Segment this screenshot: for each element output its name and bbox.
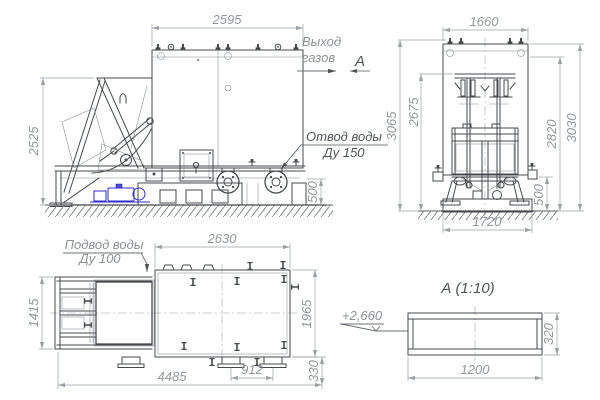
water-supply-label: Подвод воды: [65, 237, 144, 252]
dim-side-inner-left: 2675: [406, 74, 453, 211]
elevation-label: +2,660: [342, 308, 383, 323]
dim-front-drain-height: 500: [305, 179, 333, 205]
gas-outlet-label: газов: [302, 50, 335, 65]
dim-label: 1415: [26, 298, 41, 328]
front-view: 2595 2525 500 Выход газов А Отвод воды Д…: [26, 12, 388, 217]
dim-plan-tank-depth: 1965: [292, 270, 318, 357]
plan-view: 2630 1415 1965 330 912 4485 Подвод: [26, 231, 326, 389]
dim-label: 2525: [26, 126, 41, 157]
technical-drawing-canvas: 2595 2525 500 Выход газов А Отвод воды Д…: [0, 0, 600, 400]
dim-plan-right-offset: 330: [292, 357, 326, 385]
tank-body: [152, 50, 303, 168]
water-drain-label: Отвод воды: [306, 129, 382, 144]
side-roof-bolts: [448, 38, 524, 44]
dim-label: 2630: [207, 231, 238, 246]
dim-label: 1660: [470, 14, 500, 29]
water-drain-label: Ду 150: [321, 145, 365, 160]
dim-plan-skip-depth: 1415: [26, 277, 53, 349]
drawing-page: 2595 2525 500 Выход газов А Отвод воды Д…: [0, 0, 600, 400]
elevation-annotation: +2,660: [340, 308, 408, 331]
water-supply-label: Ду 100: [77, 251, 121, 266]
plan-tank-outline: [155, 261, 290, 357]
duct-cross-section: [408, 313, 542, 355]
dim-side-stub: 500: [531, 177, 553, 211]
dim-section-height: 320: [541, 313, 560, 355]
dim-label: 330: [306, 359, 321, 381]
dim-front-height: 2525: [26, 78, 94, 205]
pump-unit: [90, 168, 162, 202]
dim-label: 1200: [461, 362, 491, 377]
base-frame: [50, 155, 306, 207]
water-supply-annotation: Подвод воды Ду 100: [63, 237, 147, 272]
ground-front: [45, 205, 333, 217]
dim-label: 3030: [564, 113, 579, 143]
gas-outlet-annotation: Выход газов: [297, 34, 341, 71]
tank-roof-bolts: [156, 44, 299, 50]
section-letter: А: [354, 53, 365, 70]
dim-label: 320: [541, 322, 556, 344]
dim-plan-pad-spacing: 912: [231, 362, 273, 381]
dim-label: 3065: [384, 111, 399, 141]
dim-label: 500: [305, 180, 320, 202]
section-cut-marker: А: [350, 53, 370, 71]
dim-label: 2595: [212, 12, 243, 27]
dim-label: 1965: [299, 299, 314, 329]
dim-label: 912: [241, 362, 263, 377]
section-title: А (1:10): [440, 280, 494, 297]
section-view: А (1:10) +2,660 1200 320: [340, 280, 560, 381]
drain-flanges: [217, 168, 287, 193]
dim-side-width: 1660: [443, 14, 528, 41]
elevation-mark-icon: [341, 324, 408, 331]
dim-label: 4485: [158, 369, 188, 384]
dim-front-width: 2595: [152, 12, 303, 47]
dim-label: 1720: [473, 214, 503, 229]
water-drain-annotation: Отвод воды Ду 150: [281, 129, 388, 169]
dim-label: 500: [531, 183, 546, 205]
side-view: 1660 3065 2675 2820 3030 500: [384, 14, 584, 233]
leader-line: [281, 145, 301, 169]
leader-line: [141, 253, 147, 272]
gas-outlet-label: Выход: [302, 34, 341, 49]
dim-label: 2675: [406, 97, 421, 128]
dim-plan-tank-width: 2630: [155, 231, 290, 268]
skip-hoist: [62, 78, 153, 193]
dim-label: 2820: [544, 119, 559, 150]
